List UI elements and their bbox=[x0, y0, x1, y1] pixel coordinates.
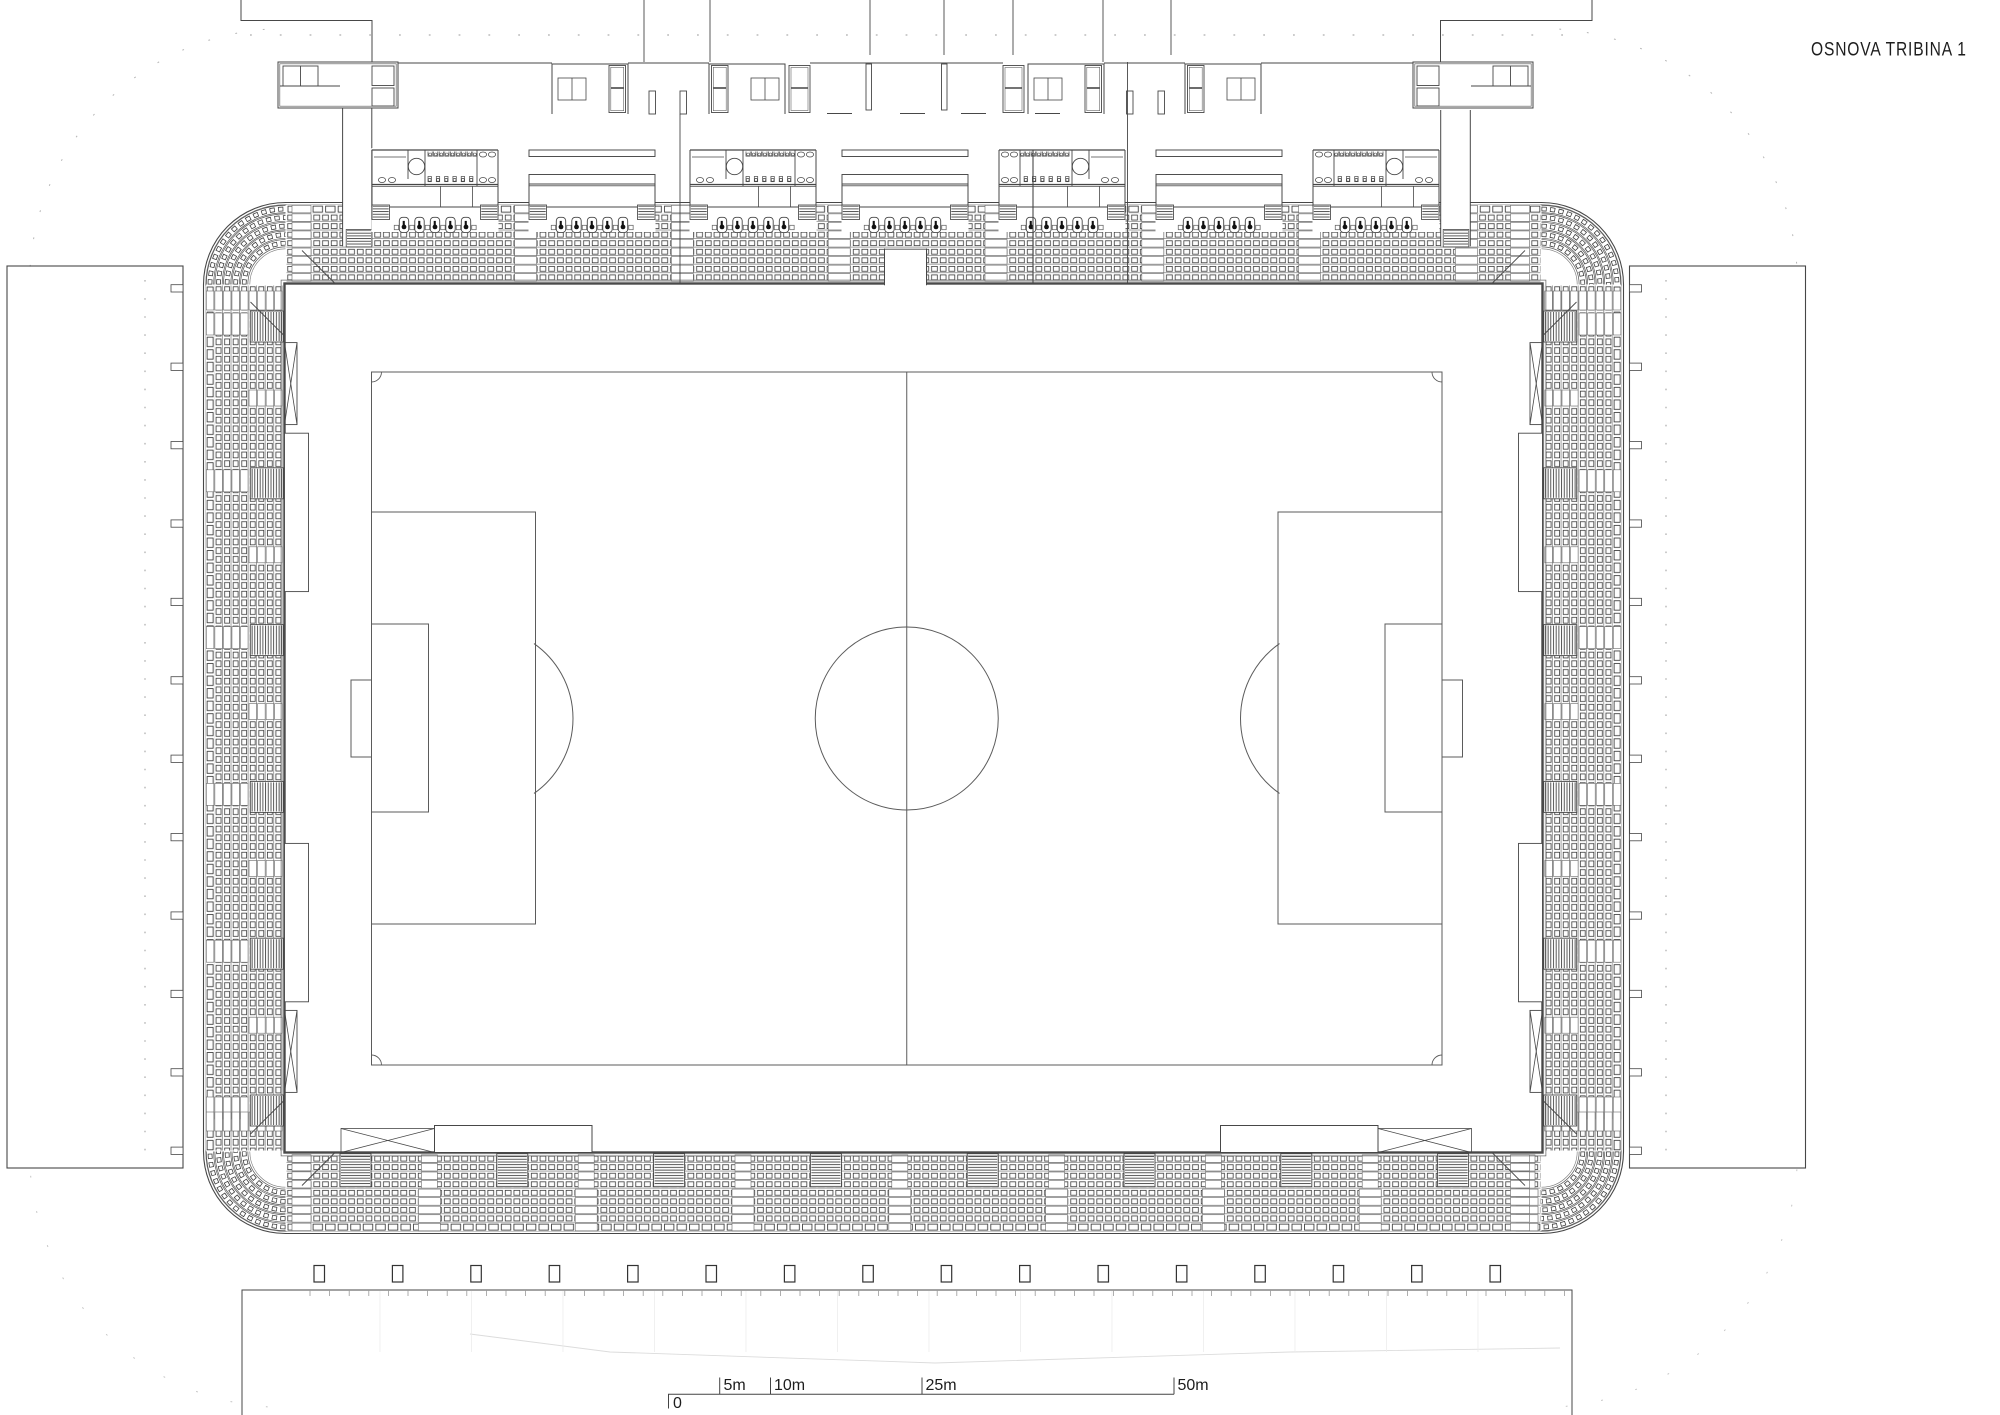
svg-text:10m: 10m bbox=[774, 1377, 805, 1394]
svg-text:50m: 50m bbox=[1178, 1377, 1209, 1394]
svg-text:OSNOVA TRIBINA 1: OSNOVA TRIBINA 1 bbox=[1811, 38, 1967, 60]
svg-text:0: 0 bbox=[673, 1395, 682, 1412]
svg-text:5m: 5m bbox=[724, 1377, 746, 1394]
svg-text:25m: 25m bbox=[926, 1377, 957, 1394]
